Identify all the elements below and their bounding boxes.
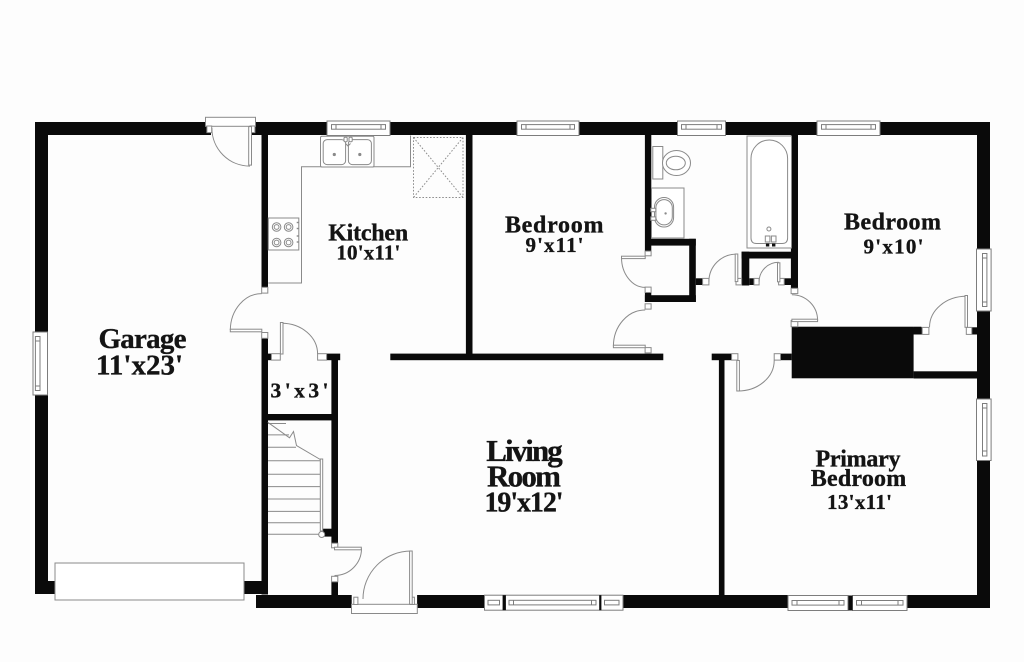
svg-text:19'x12': 19'x12'	[485, 488, 564, 519]
svg-text:10'x11': 10'x11'	[336, 241, 400, 265]
svg-text:9'x10': 9'x10'	[864, 234, 924, 258]
svg-text:13'x11': 13'x11'	[827, 490, 892, 514]
svg-text:Bedroom: Bedroom	[811, 466, 907, 492]
svg-text:Bedroom: Bedroom	[844, 209, 941, 235]
svg-text:11'x23': 11'x23'	[96, 350, 183, 382]
svg-text:9'x11': 9'x11'	[526, 233, 584, 257]
